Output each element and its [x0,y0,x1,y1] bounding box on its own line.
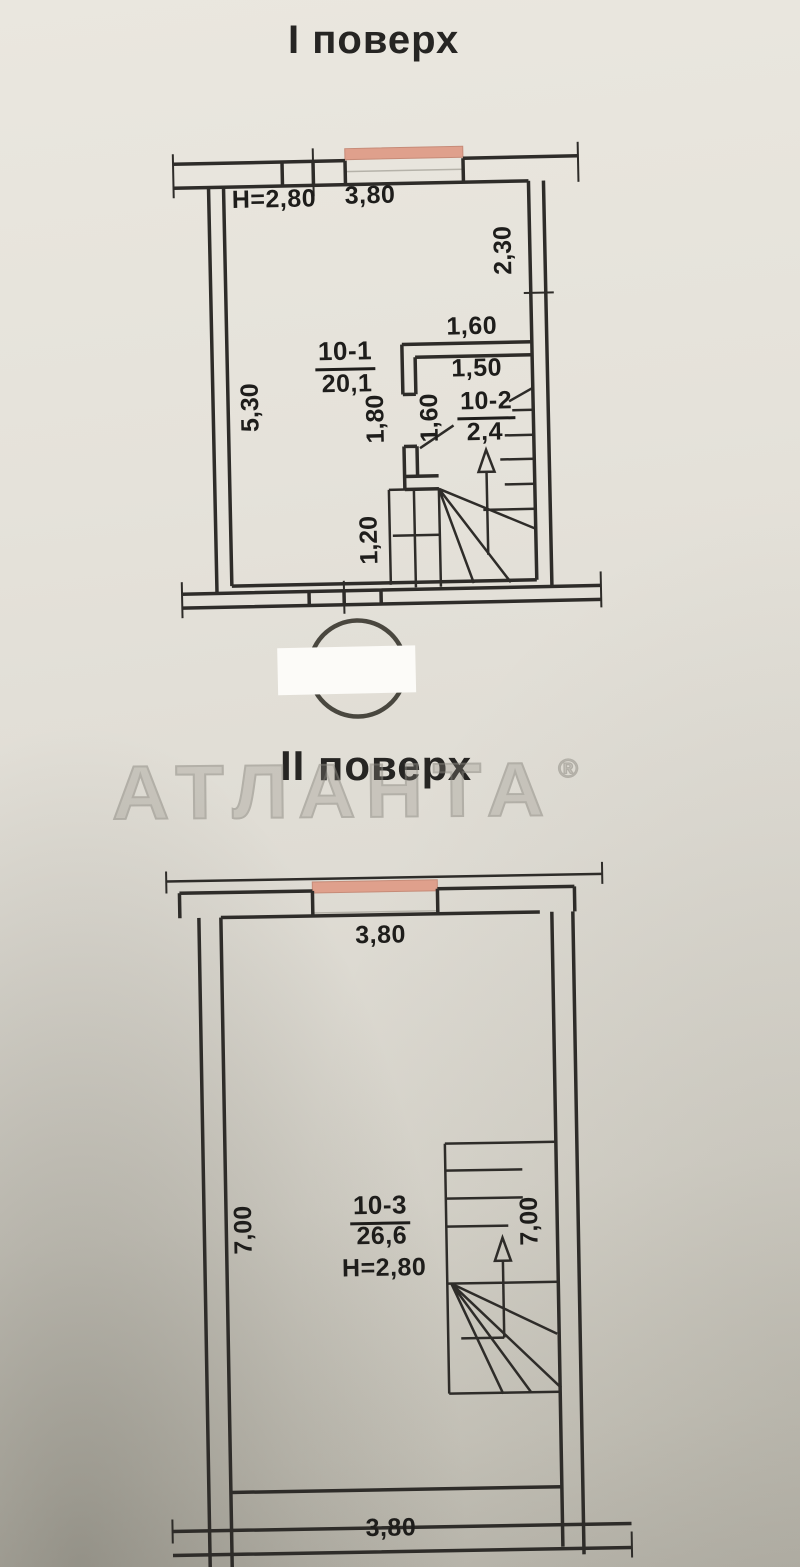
scanned-floor-plan-page: І поверх [0,0,800,1567]
floor2-dim-left: 7,00 [230,1195,257,1265]
floor2-dim-top-window: 3,80 [355,920,406,950]
floor2-room-number: 10-3 [350,1189,411,1225]
floor2-height-label: Н=2,80 [342,1253,427,1283]
floor2-dim-stair: 7,00 [516,1186,543,1256]
floor2-room-area: 26,6 [356,1221,407,1251]
agency-watermark: АТЛАНТА® [112,746,575,837]
registered-mark-icon: ® [558,753,578,783]
floor2-dim-bottom: 3,80 [365,1513,416,1543]
floor2-window-strip [312,880,438,913]
floor2-stair-up-arrow-icon [495,1238,513,1338]
floor1-title: І поверх [288,18,459,63]
